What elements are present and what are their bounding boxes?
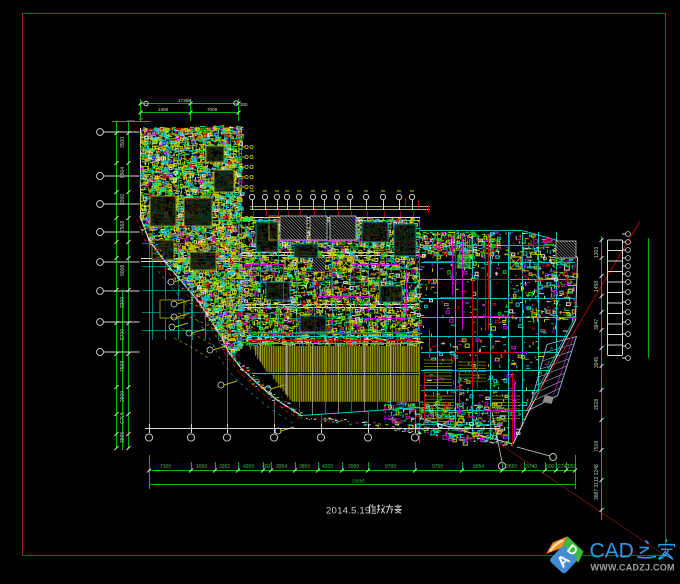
svg-text:C7L5: C7L5 bbox=[120, 412, 126, 424]
svg-text:WWW.CADZJ.COM: WWW.CADZJ.COM bbox=[591, 563, 675, 573]
svg-text:2014.5.19: 2014.5.19 bbox=[326, 506, 370, 517]
svg-text:4260: 4260 bbox=[243, 464, 254, 470]
svg-text:300: 300 bbox=[240, 102, 248, 107]
svg-text:3954: 3954 bbox=[276, 464, 287, 470]
svg-text:23680: 23680 bbox=[352, 479, 365, 484]
svg-text:3500: 3500 bbox=[120, 137, 126, 148]
svg-text:3740: 3740 bbox=[526, 464, 537, 470]
svg-text:3352: 3352 bbox=[219, 464, 230, 470]
svg-text:7568: 7568 bbox=[120, 221, 126, 232]
svg-text:17368: 17368 bbox=[178, 98, 191, 103]
svg-text:7100: 7100 bbox=[160, 464, 171, 470]
svg-text:3847: 3847 bbox=[594, 319, 600, 330]
svg-text:2618: 2618 bbox=[594, 399, 600, 410]
svg-text:3865: 3865 bbox=[120, 432, 126, 443]
svg-text:9008: 9008 bbox=[120, 265, 126, 276]
svg-text:1650: 1650 bbox=[196, 464, 207, 470]
svg-text:1458: 1458 bbox=[594, 281, 600, 292]
svg-text:1300: 1300 bbox=[158, 107, 169, 112]
svg-text:2650: 2650 bbox=[506, 464, 517, 470]
svg-text:CAD: CAD bbox=[590, 540, 634, 563]
svg-text:2600: 2600 bbox=[120, 391, 126, 402]
svg-text:9700: 9700 bbox=[432, 464, 443, 470]
svg-text:3945: 3945 bbox=[594, 357, 600, 368]
svg-text:400: 400 bbox=[262, 464, 271, 470]
svg-text:7008: 7008 bbox=[207, 107, 218, 112]
svg-text:600: 600 bbox=[546, 464, 555, 470]
svg-text:7518: 7518 bbox=[594, 441, 600, 452]
svg-text:5700: 5700 bbox=[120, 329, 126, 340]
svg-text:350: 350 bbox=[568, 464, 577, 470]
svg-text:3887 3113 1248: 3887 3113 1248 bbox=[594, 464, 600, 500]
svg-text:2000: 2000 bbox=[348, 464, 359, 470]
svg-text:4200: 4200 bbox=[322, 464, 333, 470]
svg-text:7568: 7568 bbox=[120, 361, 126, 372]
svg-text:9700: 9700 bbox=[385, 464, 396, 470]
svg-text:8200: 8200 bbox=[120, 194, 126, 205]
svg-text:1303: 1303 bbox=[594, 247, 600, 258]
svg-text:9054: 9054 bbox=[473, 464, 484, 470]
svg-text:3850: 3850 bbox=[299, 464, 310, 470]
svg-text:3300: 3300 bbox=[120, 297, 126, 308]
